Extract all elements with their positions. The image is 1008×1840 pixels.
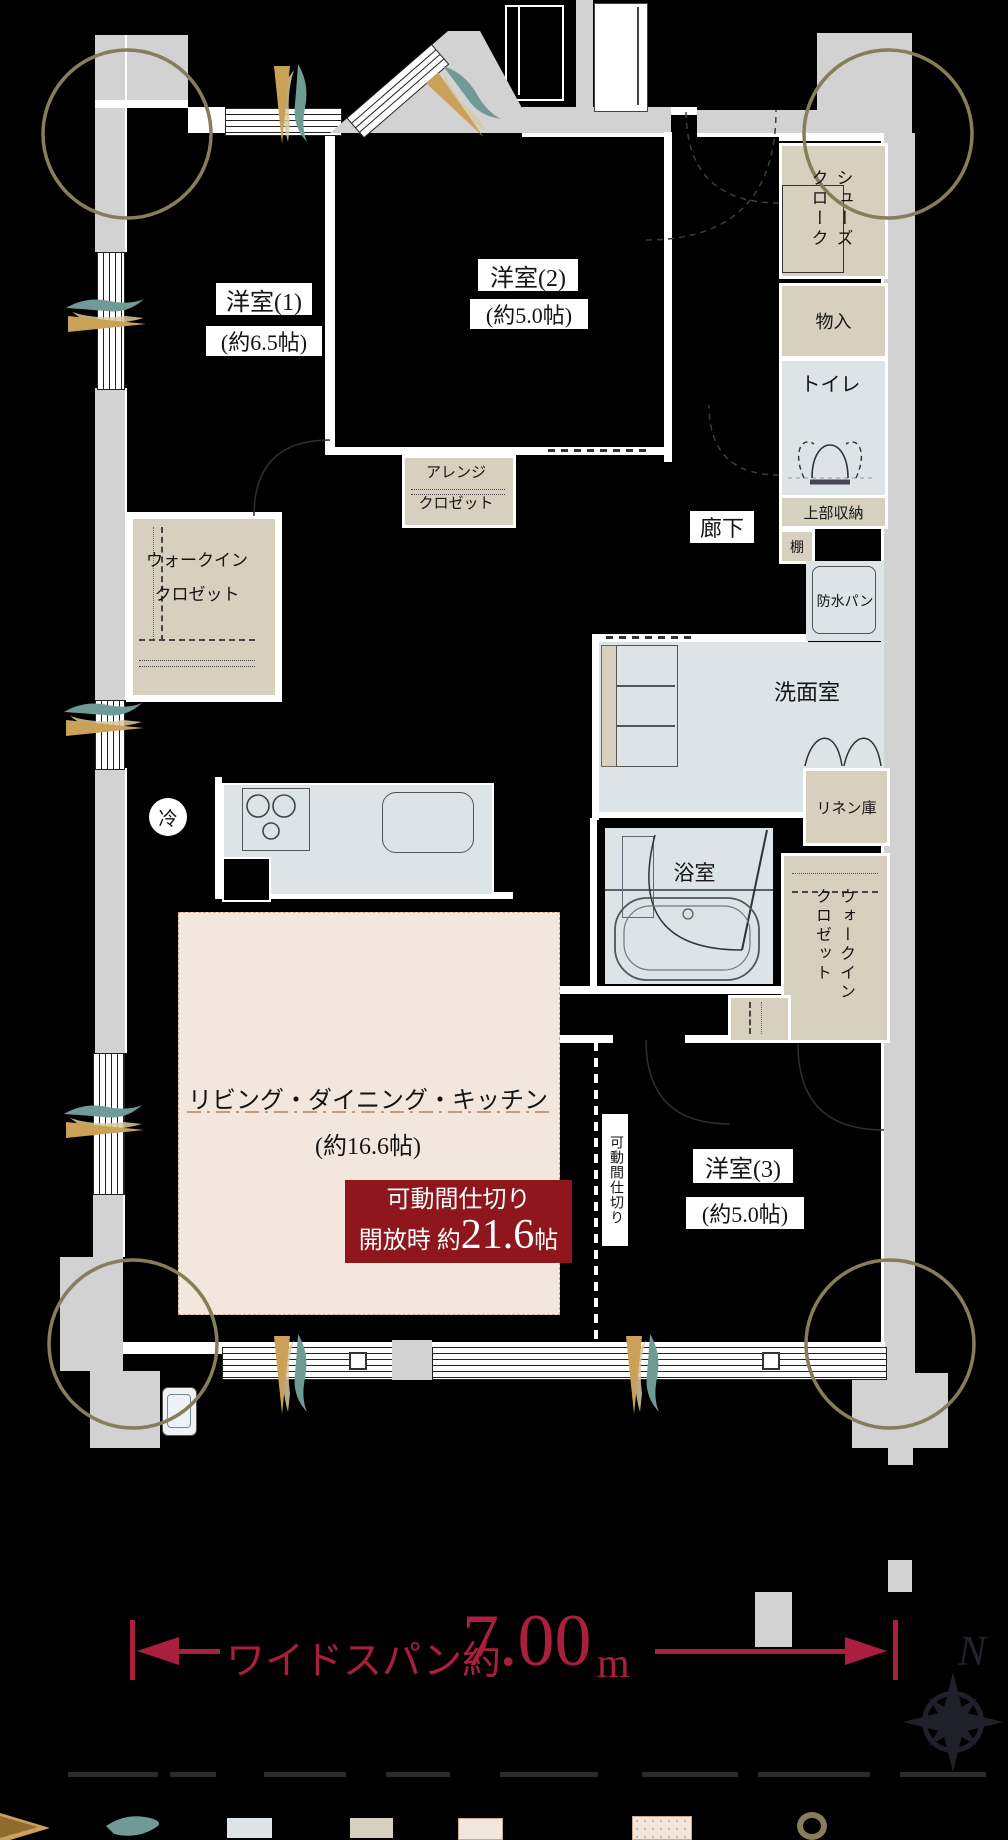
balcony-wall xyxy=(852,1373,948,1448)
window-handle xyxy=(762,1352,780,1370)
door-arc xyxy=(254,440,330,516)
shelf: 棚 xyxy=(779,529,815,564)
door-arc xyxy=(646,1040,730,1124)
room-label-y3-text: 洋室(3) xyxy=(705,1149,781,1184)
waterproof-pan: 防水パン xyxy=(806,561,884,641)
room-label-y1: 洋室(1) xyxy=(216,283,312,315)
balcony-block xyxy=(90,1371,160,1448)
white-wall xyxy=(215,777,222,899)
arrange-label-2: クロゼット xyxy=(404,492,508,512)
legend-label-clipped xyxy=(264,1772,346,1777)
room-label-y1-text: 洋室(1) xyxy=(226,282,302,317)
room-label-y2: 洋室(2) xyxy=(478,259,578,291)
bathroom xyxy=(605,828,773,984)
hallway-label: 廊下 xyxy=(690,511,754,543)
refrigerator-label: 冷 xyxy=(158,804,177,831)
ldk-label: リビング・ダイニング・キッチン xyxy=(188,1082,548,1112)
partition-callout-line1: 可動間仕切り xyxy=(387,1187,531,1213)
dimension-prefix: ワイドスパン約 xyxy=(226,1630,501,1686)
window xyxy=(95,700,125,770)
room-label-y3: 洋室(3) xyxy=(693,1149,793,1183)
wall xyxy=(95,768,127,1053)
compass-north-label: N xyxy=(958,1628,986,1676)
waterproof-pan-label: 防水パン xyxy=(817,591,874,611)
legend-swatch-wet xyxy=(227,1818,272,1838)
wic1-label-1: ウォークイン xyxy=(134,546,260,570)
balcony-post xyxy=(888,1560,912,1592)
ldk-text: リビング・ダイニング・キッチン xyxy=(188,1080,548,1115)
balcony-block xyxy=(755,1592,792,1647)
legend-plant-cone-icon xyxy=(0,1813,50,1840)
kitchen-counter-ext xyxy=(267,857,494,896)
white-wall xyxy=(123,1342,222,1354)
door-arc xyxy=(798,1044,884,1130)
room-size-y2: (約5.0帖) xyxy=(470,299,588,329)
wall-angled xyxy=(330,31,522,133)
white-wall xyxy=(188,107,225,133)
partition-callout-value: 21.6 xyxy=(461,1214,535,1256)
room-size-y1: (約6.5帖) xyxy=(206,326,322,356)
wall-entrance-block xyxy=(817,33,912,133)
partition-callout-suffix: 帖 xyxy=(534,1220,558,1255)
stove xyxy=(242,788,310,851)
ldk-size-text: (約16.6帖) xyxy=(315,1126,421,1161)
legend-swatch-closet xyxy=(350,1818,393,1838)
entrance-door xyxy=(594,3,648,112)
wic2-label: ウォークイン クロゼット xyxy=(790,865,876,1025)
vanity-counter xyxy=(616,645,678,767)
arrange-text-2: クロゼット xyxy=(418,492,493,513)
room-size-y3: (約5.0帖) xyxy=(686,1197,804,1229)
upper-storage-label: 上部収納 xyxy=(803,502,863,523)
wic1-text-1: ウォークイン xyxy=(146,546,248,571)
shelf-label: 棚 xyxy=(790,537,804,557)
movable-partition-label: 可動間仕切り xyxy=(601,1113,629,1247)
wall-corner xyxy=(60,1257,123,1371)
ldk-size: (約16.6帖) xyxy=(188,1128,548,1158)
window xyxy=(432,1347,887,1380)
dimension-tick-right xyxy=(893,1620,898,1680)
refrigerator: 冷 xyxy=(149,798,187,836)
storage-small-label: 物入 xyxy=(816,308,852,334)
kitchen-end-panel xyxy=(222,857,271,902)
arrange-text-1: アレンジ xyxy=(426,461,486,482)
linen-storage: リネン庫 xyxy=(803,768,890,846)
white-wall xyxy=(325,110,335,455)
washroom-text: 洗面室 xyxy=(774,675,840,707)
room-size-y1-text: (約6.5帖) xyxy=(221,325,307,357)
balcony-sink xyxy=(162,1387,197,1436)
dimension-unit: m xyxy=(597,1640,630,1688)
walk-in-closet-1 xyxy=(126,512,282,702)
legend-swatch-ldk-dotted xyxy=(632,1816,692,1840)
white-wall xyxy=(560,986,792,994)
plant-icon xyxy=(425,60,502,142)
shoe-cloak-text: シューズ クローク xyxy=(806,169,856,249)
toilet-label: トイレ xyxy=(779,362,882,402)
sliding-door xyxy=(548,449,652,452)
legend-label-clipped xyxy=(642,1772,738,1777)
porch-outline xyxy=(505,5,564,101)
wall-pier xyxy=(392,1340,432,1380)
window xyxy=(93,1053,125,1195)
wall xyxy=(576,0,593,110)
white-wall xyxy=(590,818,597,988)
toilet-text: トイレ xyxy=(801,368,861,397)
wic1-label-2: クロゼット xyxy=(134,580,260,604)
legend-swatch-ldk xyxy=(458,1818,503,1840)
window-handle xyxy=(349,1352,367,1370)
legend-label-clipped xyxy=(170,1772,216,1777)
window xyxy=(225,108,342,136)
floor-plan: 物入 上部収納 棚 防水パン リネン庫 xyxy=(0,0,1008,1840)
white-wall xyxy=(671,107,697,115)
bathroom-text: 浴室 xyxy=(674,857,716,887)
window xyxy=(97,252,125,390)
legend-ring-icon xyxy=(797,1812,827,1840)
bathroom-label: 浴室 xyxy=(647,858,742,886)
dimension-arrow-right xyxy=(845,1637,887,1665)
wall xyxy=(95,388,127,700)
dimension-value: 7.00 xyxy=(462,1604,592,1678)
kitchen-sink xyxy=(382,792,474,853)
balcony-wall xyxy=(888,1448,913,1465)
compass-rose-icon xyxy=(903,1672,1003,1772)
white-wall xyxy=(592,634,599,820)
walk-in-closet-2-ext xyxy=(728,995,791,1043)
washroom-label: 洗面室 xyxy=(737,676,877,706)
hallway-text: 廊下 xyxy=(700,511,744,543)
linen-label: リネン庫 xyxy=(816,797,876,818)
white-wall xyxy=(555,1035,613,1043)
wall xyxy=(93,1193,125,1257)
storage-small: 物入 xyxy=(779,283,888,359)
white-wall xyxy=(664,132,672,462)
wic1-text-2: クロゼット xyxy=(155,580,240,605)
legend-plant-leaf-icon xyxy=(106,1816,159,1836)
upper-storage: 上部収納 xyxy=(779,495,888,529)
legend-label-clipped xyxy=(68,1772,158,1777)
partition-callout-prefix: 開放時 約 xyxy=(359,1220,461,1255)
room-size-y3-text: (約5.0帖) xyxy=(702,1197,788,1229)
legend-label-clipped xyxy=(758,1772,870,1777)
legend-label-clipped xyxy=(386,1772,450,1777)
movable-partition-text: 可動間仕切り xyxy=(605,1135,625,1225)
white-wall xyxy=(95,100,188,108)
room-label-y2-text: 洋室(2) xyxy=(490,258,566,293)
shoe-cloak-label: シューズ クローク xyxy=(779,150,882,268)
partition-callout: 可動間仕切り 開放時 約 21.6 帖 xyxy=(345,1180,572,1263)
wic2-text: ウォークイン クロゼット xyxy=(809,888,857,1002)
room-size-y2-text: (約5.0帖) xyxy=(486,298,572,330)
legend-label-clipped xyxy=(500,1772,598,1777)
dimension-line-right xyxy=(655,1649,850,1654)
white-wall xyxy=(779,133,882,141)
legend-label-clipped xyxy=(900,1772,986,1777)
sliding-door xyxy=(606,636,694,639)
arrange-label-1: アレンジ xyxy=(404,461,508,481)
door-arc xyxy=(709,405,779,475)
wall xyxy=(95,35,127,252)
dimension-tick-left xyxy=(130,1620,135,1680)
window xyxy=(222,1347,394,1380)
dimension-line-left xyxy=(170,1649,220,1654)
movable-partition-line xyxy=(594,1042,598,1345)
